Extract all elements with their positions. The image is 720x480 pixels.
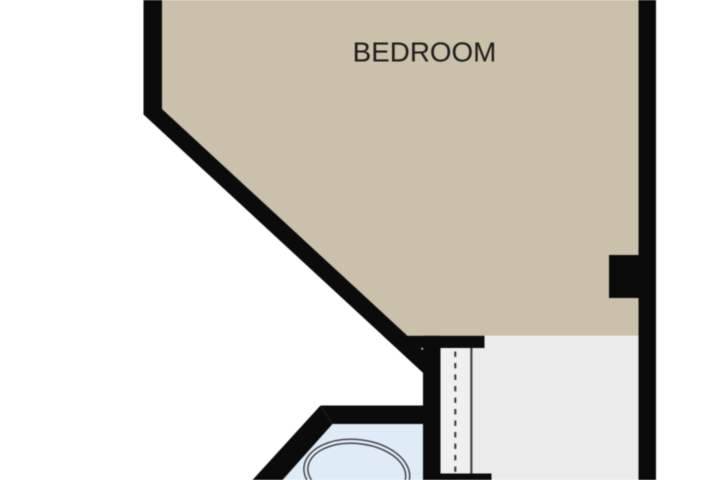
svg-text:BEDROOM: BEDROOM [353,37,497,68]
